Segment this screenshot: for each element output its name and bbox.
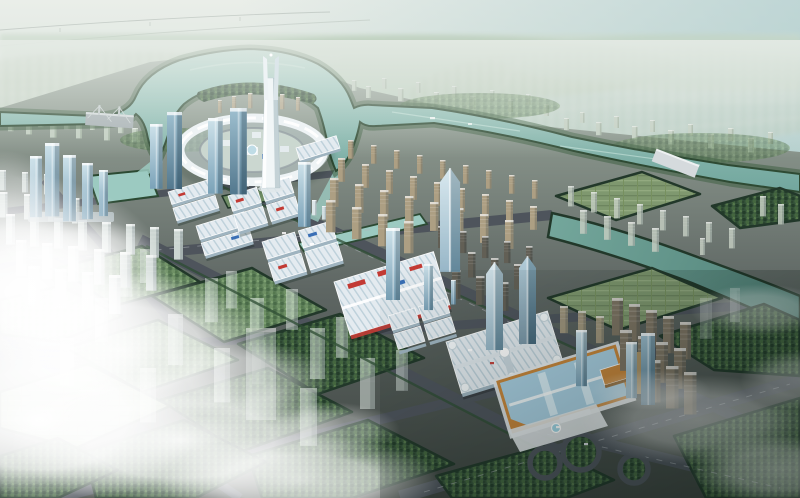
atmospheric-haze xyxy=(0,40,800,158)
aerial-city-rendering xyxy=(0,0,800,498)
white-tower xyxy=(440,168,460,272)
corner-vignette xyxy=(380,270,800,498)
rendering-canvas xyxy=(0,0,800,498)
